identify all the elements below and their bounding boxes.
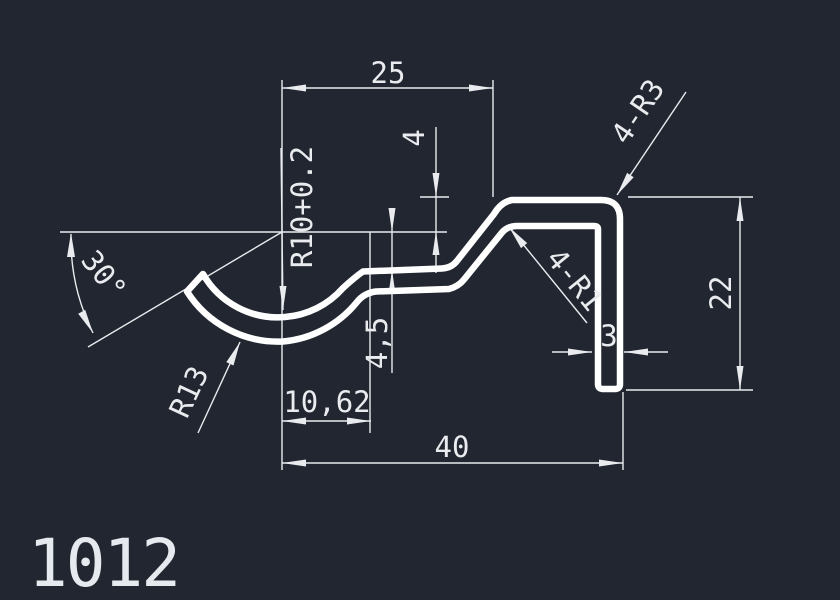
dim-30deg-label: 30° [74,244,133,306]
dim-3-label: 3 [600,319,617,353]
dim-4-label: 4 [397,129,431,146]
part-number: 1012 [28,525,179,600]
cad-viewport: 25 4 4-R3 R10+0.2 30° 22 4,5 R13 10,62 3… [0,0,840,600]
leader-r10-label: R10+0.2 [285,146,319,268]
dim-40-label: 40 [435,430,470,464]
dim-4-5-label: 4,5 [360,317,394,369]
profile-outline [187,200,620,389]
dim-22-label: 22 [704,276,738,311]
dim-10-62-label: 10,62 [283,385,370,419]
dim-25-label: 25 [371,56,406,90]
leader-4r3-label: 4-R3 [604,73,671,150]
cad-canvas[interactable]: 25 4 4-R3 R10+0.2 30° 22 4,5 R13 10,62 3… [0,0,840,600]
